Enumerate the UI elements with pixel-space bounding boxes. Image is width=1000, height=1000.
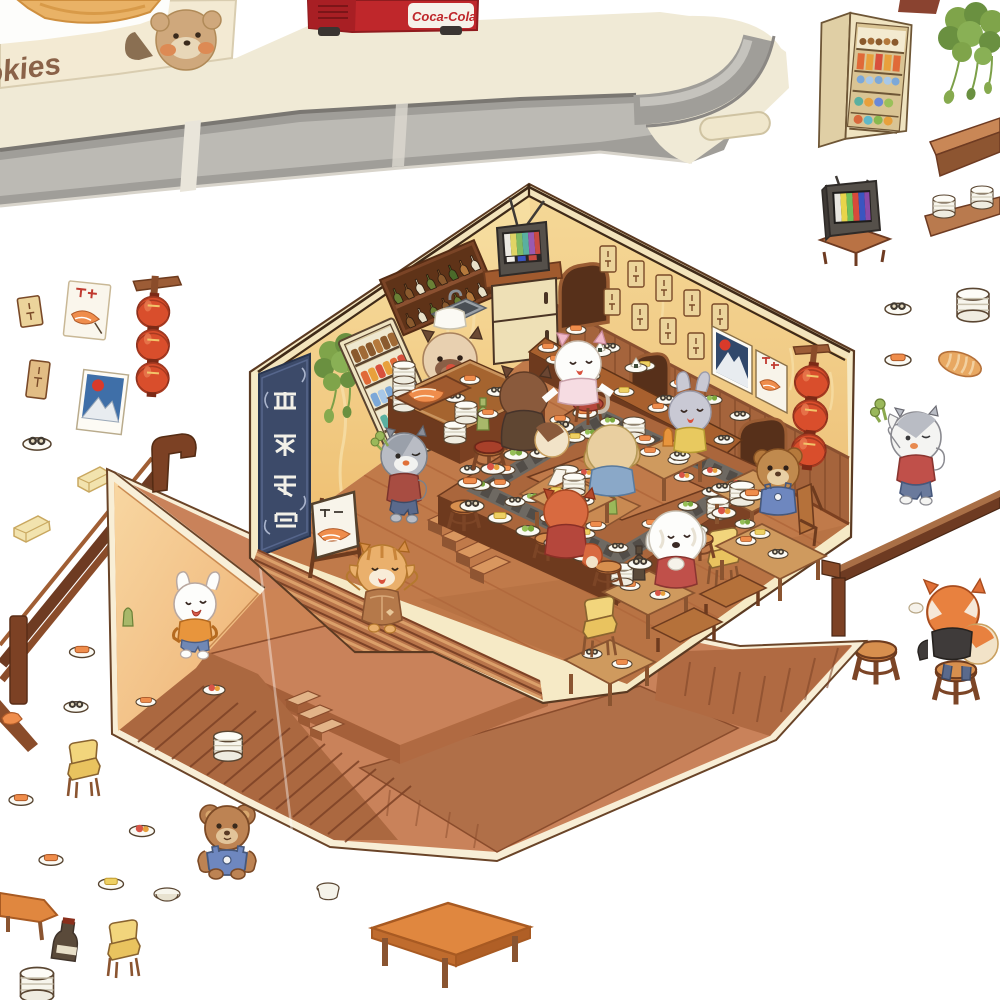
svg-text:Coca-Cola: Coca-Cola: [412, 9, 476, 24]
